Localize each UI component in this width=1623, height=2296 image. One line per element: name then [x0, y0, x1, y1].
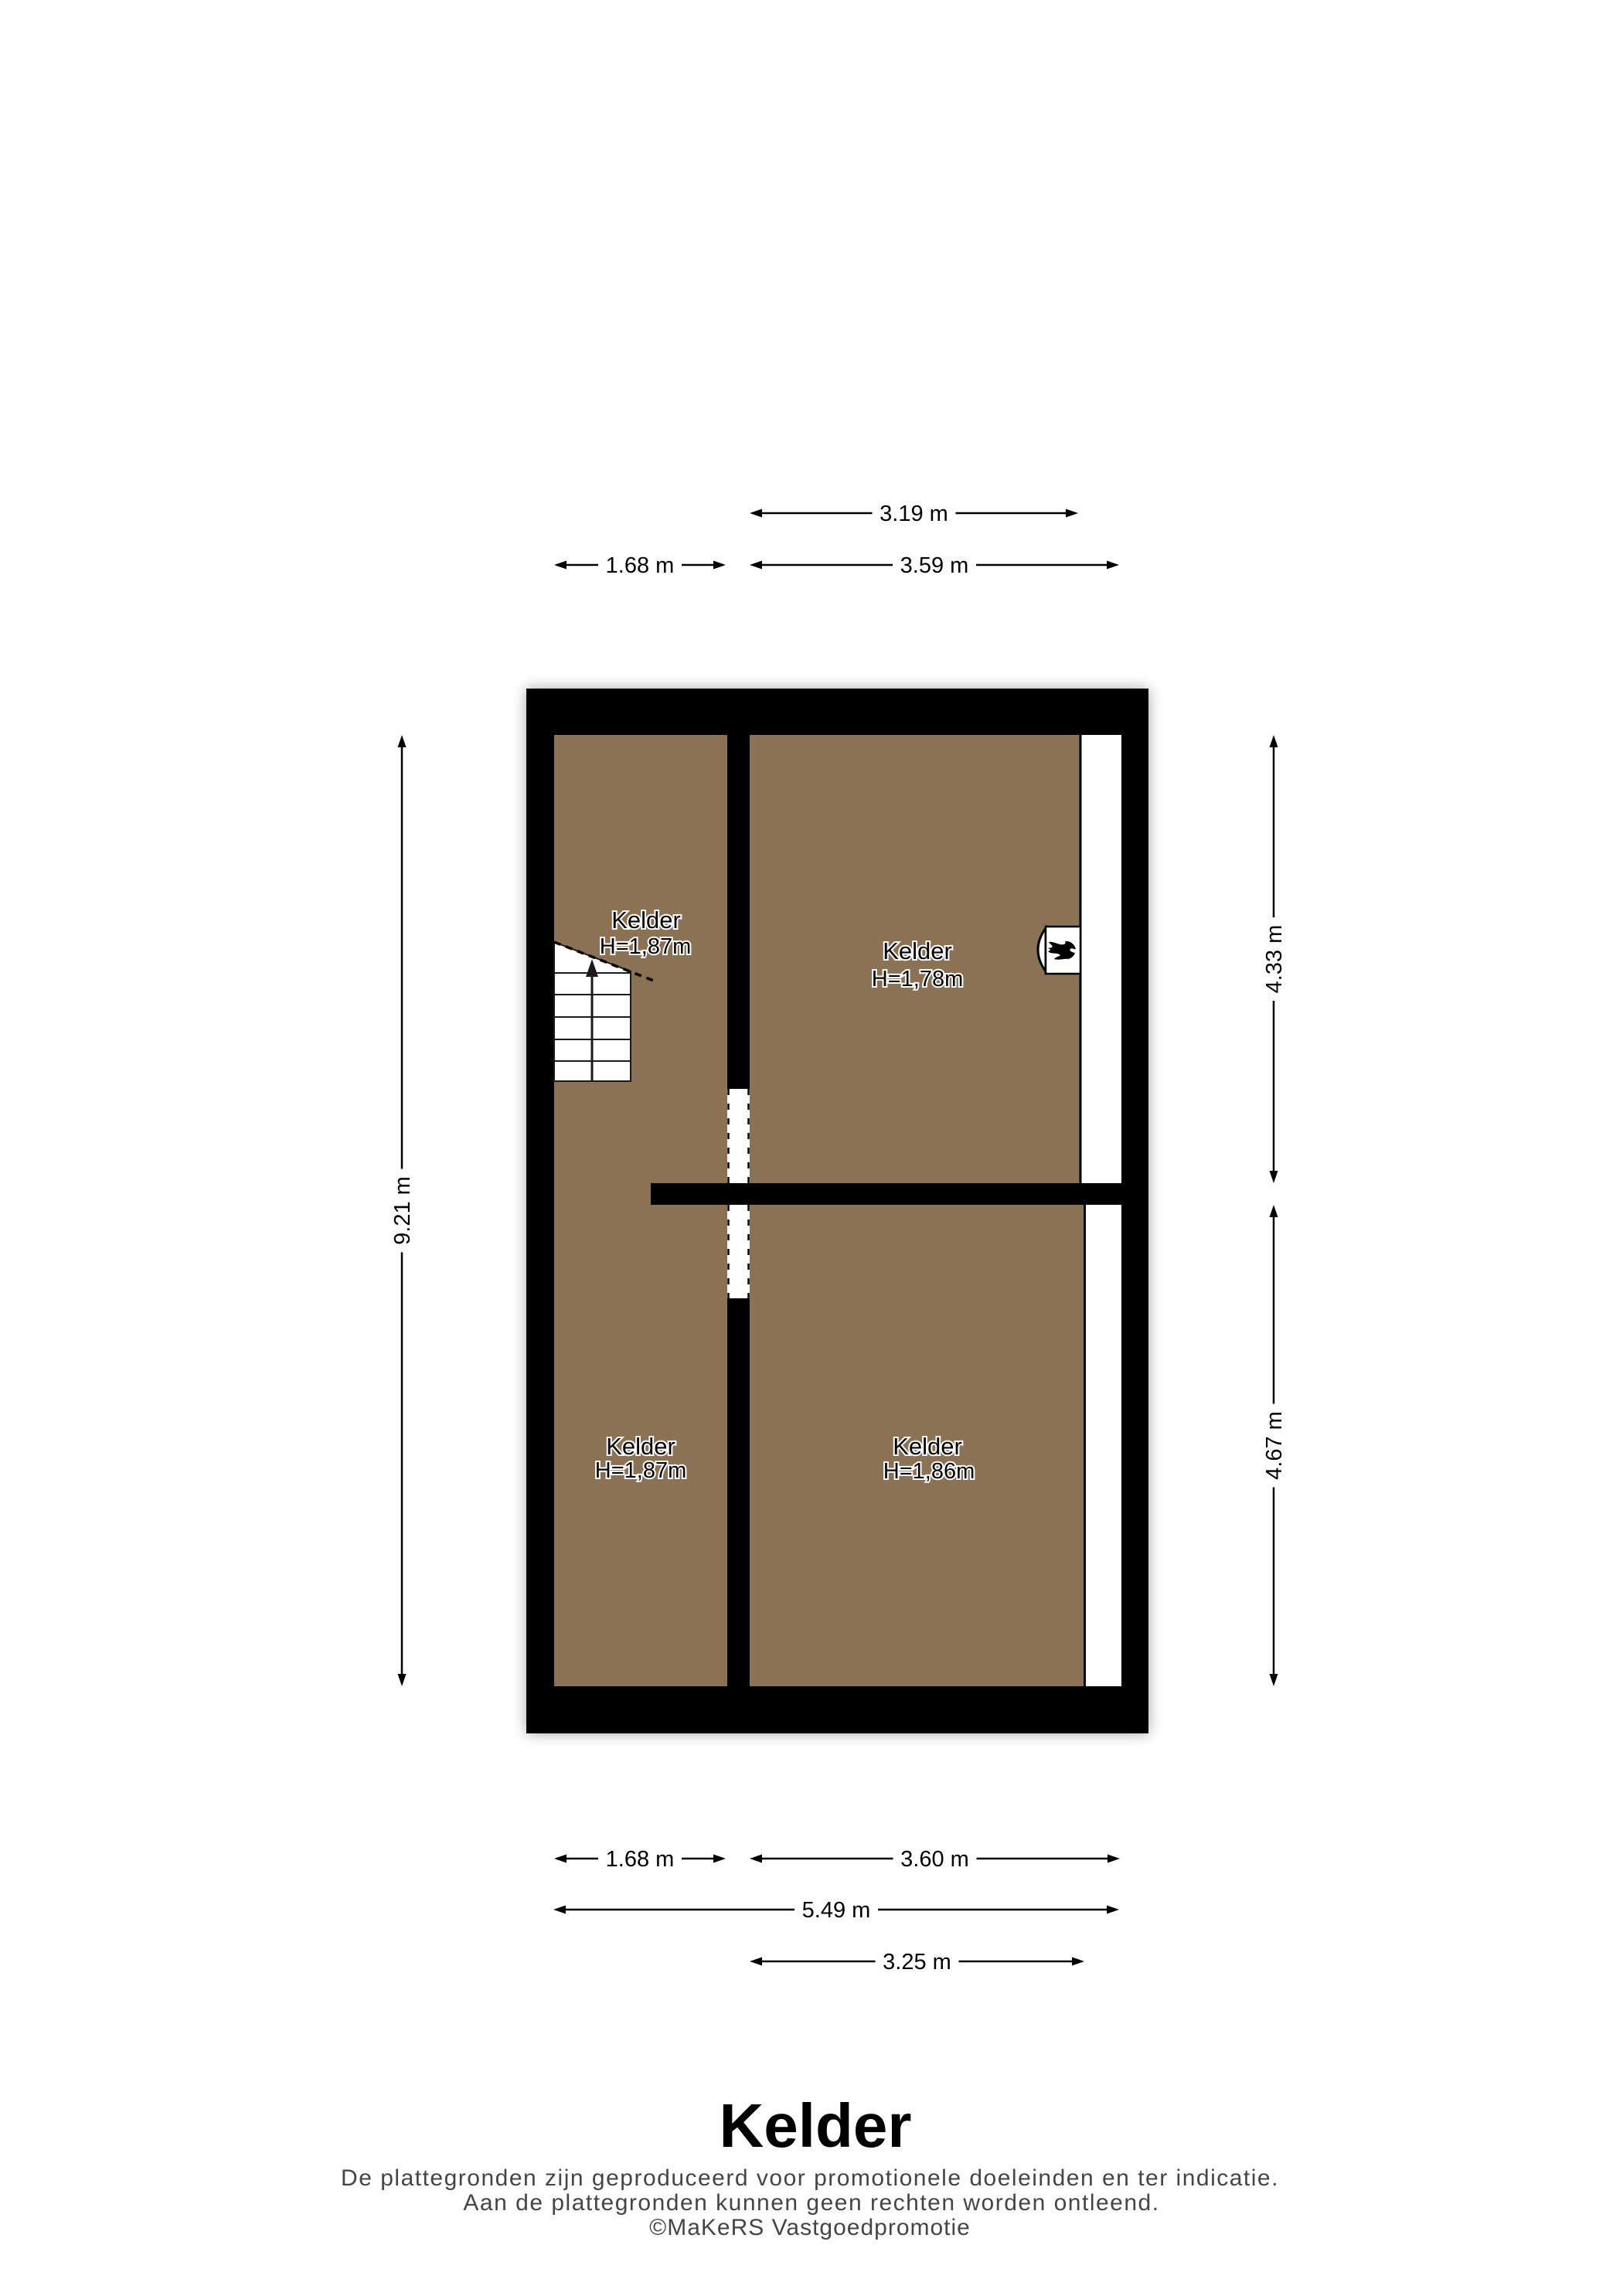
svg-text:1.68 m: 1.68 m	[606, 553, 675, 578]
svg-text:5.49 m: 5.49 m	[802, 1898, 871, 1923]
svg-text:3.60 m: 3.60 m	[900, 1847, 969, 1872]
svg-text:Kelder: Kelder	[720, 2091, 912, 2160]
svg-text:Kelder: Kelder	[611, 906, 681, 934]
svg-text:9.21 m: 9.21 m	[390, 1176, 415, 1245]
svg-text:H=1,78m: H=1,78m	[872, 967, 963, 992]
svg-text:Kelder: Kelder	[893, 1433, 962, 1460]
svg-text:3.19 m: 3.19 m	[880, 502, 948, 526]
svg-text:Kelder: Kelder	[606, 1433, 675, 1460]
svg-text:4.67 m: 4.67 m	[1262, 1411, 1287, 1480]
svg-text:De plattegronden zijn geproduc: De plattegronden zijn geproduceerd voor …	[341, 2165, 1279, 2191]
svg-text:H=1,87m: H=1,87m	[595, 1458, 686, 1483]
svg-text:4.33 m: 4.33 m	[1262, 925, 1287, 994]
svg-text:©MaKeRS Vastgoedpromotie: ©MaKeRS Vastgoedpromotie	[649, 2215, 971, 2240]
svg-text:Kelder: Kelder	[883, 937, 952, 964]
svg-text:Aan de plattegronden kunnen ge: Aan de plattegronden kunnen geen rechten…	[463, 2190, 1159, 2216]
svg-text:1.68 m: 1.68 m	[606, 1847, 675, 1872]
svg-text:H=1,86m: H=1,86m	[883, 1459, 975, 1484]
svg-text:H=1,87m: H=1,87m	[600, 934, 691, 959]
svg-text:3.59 m: 3.59 m	[900, 553, 969, 578]
svg-text:3.25 m: 3.25 m	[883, 1950, 951, 1975]
